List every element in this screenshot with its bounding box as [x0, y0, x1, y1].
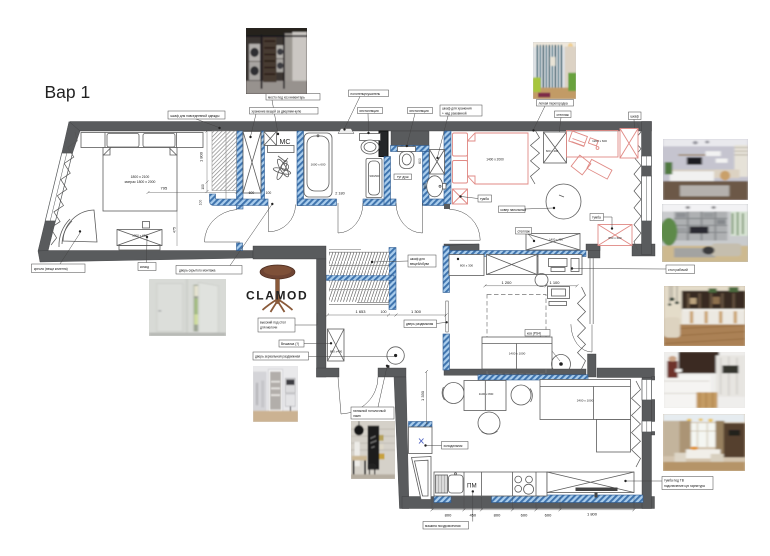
- svg-text:1800 х 2100: 1800 х 2100: [131, 175, 150, 179]
- svg-text:стол рабочий: стол рабочий: [668, 268, 688, 272]
- svg-text:легкая перегородка: легкая перегородка: [539, 101, 568, 105]
- svg-text:1600 х 600: 1600 х 600: [311, 163, 326, 167]
- svg-text:тумба: тумба: [592, 216, 601, 220]
- svg-text:шкаф для хранения: шкаф для хранения: [442, 107, 472, 111]
- svg-text:600: 600: [545, 513, 552, 518]
- svg-text:комод: комод: [140, 265, 149, 269]
- svg-text:ламп: ламп: [353, 414, 361, 418]
- svg-text:1400 х 1000: 1400 х 1000: [509, 352, 526, 356]
- svg-text:600: 600: [418, 158, 422, 164]
- svg-text:шкаф для повседневной одежды: шкаф для повседневной одежды: [171, 114, 221, 118]
- svg-text:600 х 400: 600 х 400: [546, 149, 559, 153]
- svg-text:800 х400: 800 х400: [330, 350, 343, 354]
- svg-text:100: 100: [201, 184, 205, 190]
- svg-text:холодильник: холодильник: [444, 444, 464, 448]
- svg-text:полотенцесушитель: полотенцесушитель: [351, 92, 381, 96]
- svg-text:тумба: тумба: [480, 197, 489, 201]
- svg-text:1 330: 1 330: [420, 390, 425, 401]
- svg-text:100: 100: [381, 310, 387, 314]
- svg-text:1 300: 1 300: [411, 309, 422, 314]
- svg-text:1400 х 400: 1400 х 400: [549, 238, 563, 242]
- svg-text:дверь зеркальная раздвижная: дверь зеркальная раздвижная: [255, 355, 300, 359]
- svg-text:инсталляция: инсталляция: [410, 109, 429, 113]
- svg-text:Вар 1: Вар 1: [45, 82, 91, 102]
- svg-text:ПМ: ПМ: [467, 483, 477, 490]
- svg-text:795: 795: [161, 186, 168, 191]
- svg-text:вещей/обуви: вещей/обуви: [410, 262, 429, 266]
- svg-text:2400 х 1000: 2400 х 1000: [577, 399, 594, 403]
- svg-text:665: 665: [423, 183, 427, 189]
- svg-text:стеллаж: стеллаж: [557, 113, 570, 117]
- svg-text:1100 х 800: 1100 х 800: [479, 392, 494, 396]
- svg-text:800: 800: [494, 513, 501, 518]
- svg-text:инсталляция: инсталляция: [360, 109, 379, 113]
- svg-text:1 800: 1 800: [199, 151, 204, 162]
- svg-text:Вешалка (?): Вешалка (?): [281, 342, 299, 346]
- svg-text:высокий под стол: высокий под стол: [260, 321, 286, 325]
- svg-text:дверь раздвижная: дверь раздвижная: [406, 322, 434, 326]
- svg-text:хранение вещей за дверями-купе: хранение вещей за дверями-купе: [252, 109, 302, 113]
- svg-text:1 100: 1 100: [550, 280, 561, 285]
- svg-text:600: 600: [249, 191, 255, 195]
- svg-text:1 200: 1 200: [502, 280, 513, 285]
- svg-text:800 х 300: 800 х 300: [460, 264, 474, 268]
- svg-text:машина посудомоечная: машина посудомоечная: [425, 524, 461, 528]
- svg-text:1400 х 2000: 1400 х 2000: [486, 158, 504, 162]
- svg-text:1000 х 450: 1000 х 450: [132, 234, 147, 238]
- svg-text:100: 100: [266, 191, 272, 195]
- svg-text:дверь скрытого монтажа: дверь скрытого монтажа: [179, 268, 216, 272]
- svg-text:ков (РS4): ков (РS4): [527, 331, 541, 335]
- svg-text:тут душ: тут душ: [397, 175, 409, 179]
- svg-text:натяжной потолочный: натяжной потолочный: [353, 409, 386, 413]
- svg-text:1 800: 1 800: [587, 512, 598, 517]
- svg-text:для мелочи: для мелочи: [260, 326, 277, 330]
- svg-text:матрас 1800 х 2000: матрас 1800 х 2000: [125, 180, 156, 184]
- svg-text:+ над раковиной: + над раковиной: [442, 111, 467, 115]
- svg-text:тумба под ТВ: тумба под ТВ: [664, 479, 684, 483]
- svg-text:1 653: 1 653: [356, 309, 367, 314]
- svg-text:475: 475: [173, 227, 177, 233]
- svg-text:800: 800: [445, 513, 452, 518]
- svg-text:100: 100: [199, 200, 203, 206]
- svg-text:2 180: 2 180: [335, 192, 345, 196]
- svg-text:600: 600: [521, 513, 528, 518]
- svg-text:CLAMOD: CLAMOD: [246, 289, 308, 303]
- svg-text:450: 450: [469, 513, 476, 518]
- svg-text:ковер напольный: ковер напольный: [501, 208, 527, 212]
- svg-text:кресло (вещи клиента): кресло (вещи клиента): [34, 267, 68, 271]
- svg-text:подключение кух гарнитура: подключение кух гарнитура: [664, 484, 705, 488]
- svg-text:1200 х 600: 1200 х 600: [592, 139, 607, 143]
- svg-text:МС: МС: [280, 139, 291, 146]
- svg-text:шкаф для: шкаф для: [410, 257, 425, 261]
- svg-text:850 х 600: 850 х 600: [608, 236, 622, 240]
- svg-text:900х500: 900х500: [370, 174, 381, 178]
- svg-text:шкаф: шкаф: [631, 115, 640, 119]
- svg-text:стеллаж: стеллаж: [518, 229, 531, 233]
- svg-text:место под хоз инвентарь: место под хоз инвентарь: [268, 95, 305, 99]
